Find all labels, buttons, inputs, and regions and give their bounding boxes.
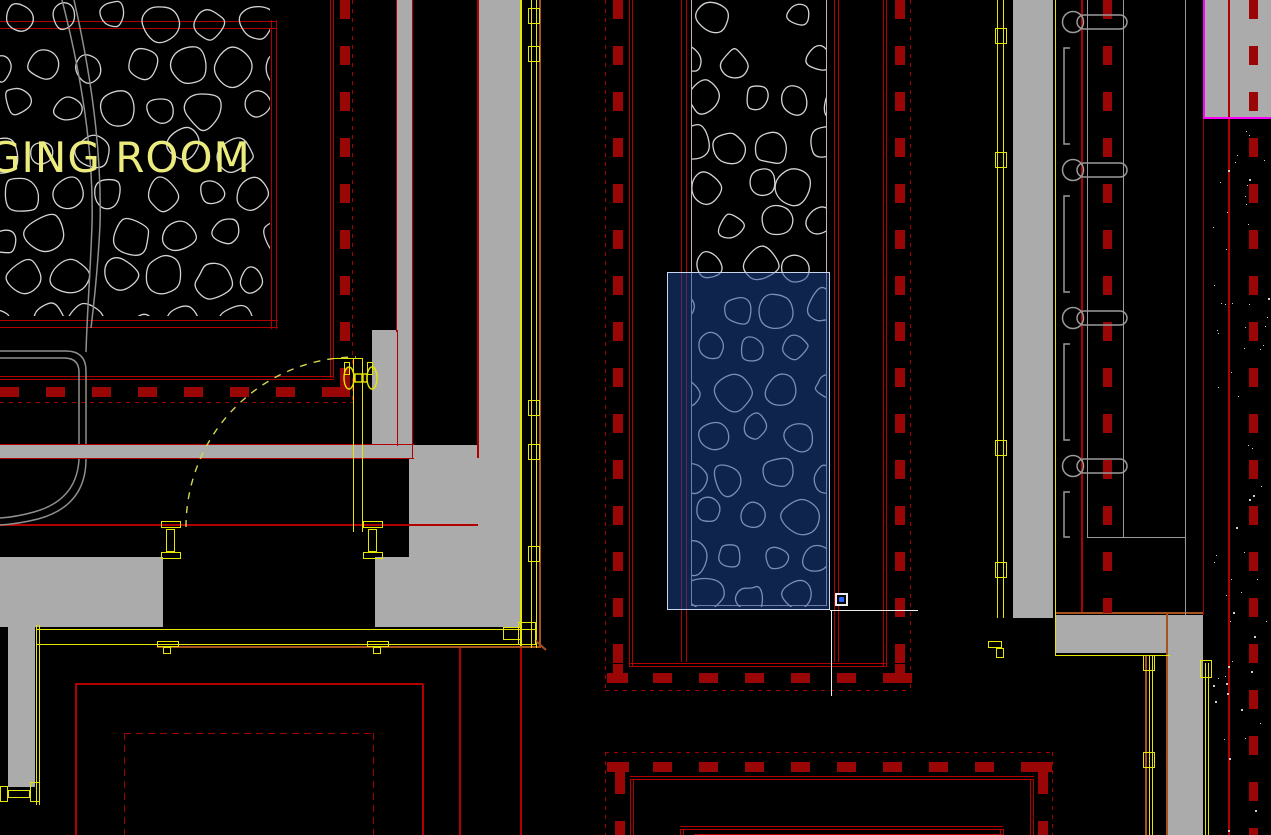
window-mullion-box xyxy=(995,440,1007,456)
door-jamb xyxy=(373,647,381,654)
door-jamb xyxy=(161,521,181,528)
wall-corner-diagonal xyxy=(535,640,546,650)
window-mullion-box xyxy=(995,562,1007,578)
window-mullion-box xyxy=(995,28,1007,44)
window-mullion-box xyxy=(1143,655,1155,671)
window-selection-badge-icon xyxy=(835,593,848,606)
crosshair-vertical xyxy=(831,610,832,696)
crosshair-horizontal xyxy=(830,610,918,611)
window-mullion-box xyxy=(518,622,536,645)
door-jamb xyxy=(163,647,171,654)
window-mullion-box xyxy=(0,786,8,802)
pickbox-blue-dot xyxy=(839,597,844,602)
selection-window xyxy=(667,272,830,610)
coat-hooks[interactable] xyxy=(1063,12,1128,538)
window-mullion-box xyxy=(1200,660,1212,678)
window-mullion-box xyxy=(30,782,40,802)
door-jamb xyxy=(368,529,377,552)
door-jamb xyxy=(363,521,383,528)
door-swing-arc[interactable] xyxy=(186,357,356,527)
window-mullion-box xyxy=(995,152,1007,168)
window-mullion-box xyxy=(1143,752,1155,768)
door-jamb xyxy=(367,362,373,375)
window-mullion-box xyxy=(528,444,540,460)
door-jamb xyxy=(363,552,383,559)
entities-layer[interactable] xyxy=(0,0,1271,835)
window-mullion-box xyxy=(528,46,540,62)
window-mullion-box xyxy=(996,648,1004,658)
window-mullion-box xyxy=(528,400,540,416)
window-mullion-box xyxy=(528,8,540,24)
room-label: GING ROOM xyxy=(0,133,388,183)
door-jamb xyxy=(161,552,181,559)
door-jamb xyxy=(166,529,175,552)
door-jamb xyxy=(344,362,350,375)
window-mullion-box xyxy=(528,546,540,562)
cad-viewport[interactable]: GING ROOM xyxy=(0,0,1271,835)
window-mullion-box xyxy=(8,790,30,798)
window-mullion-box xyxy=(988,641,1002,648)
stipple-dots xyxy=(1213,131,1270,832)
